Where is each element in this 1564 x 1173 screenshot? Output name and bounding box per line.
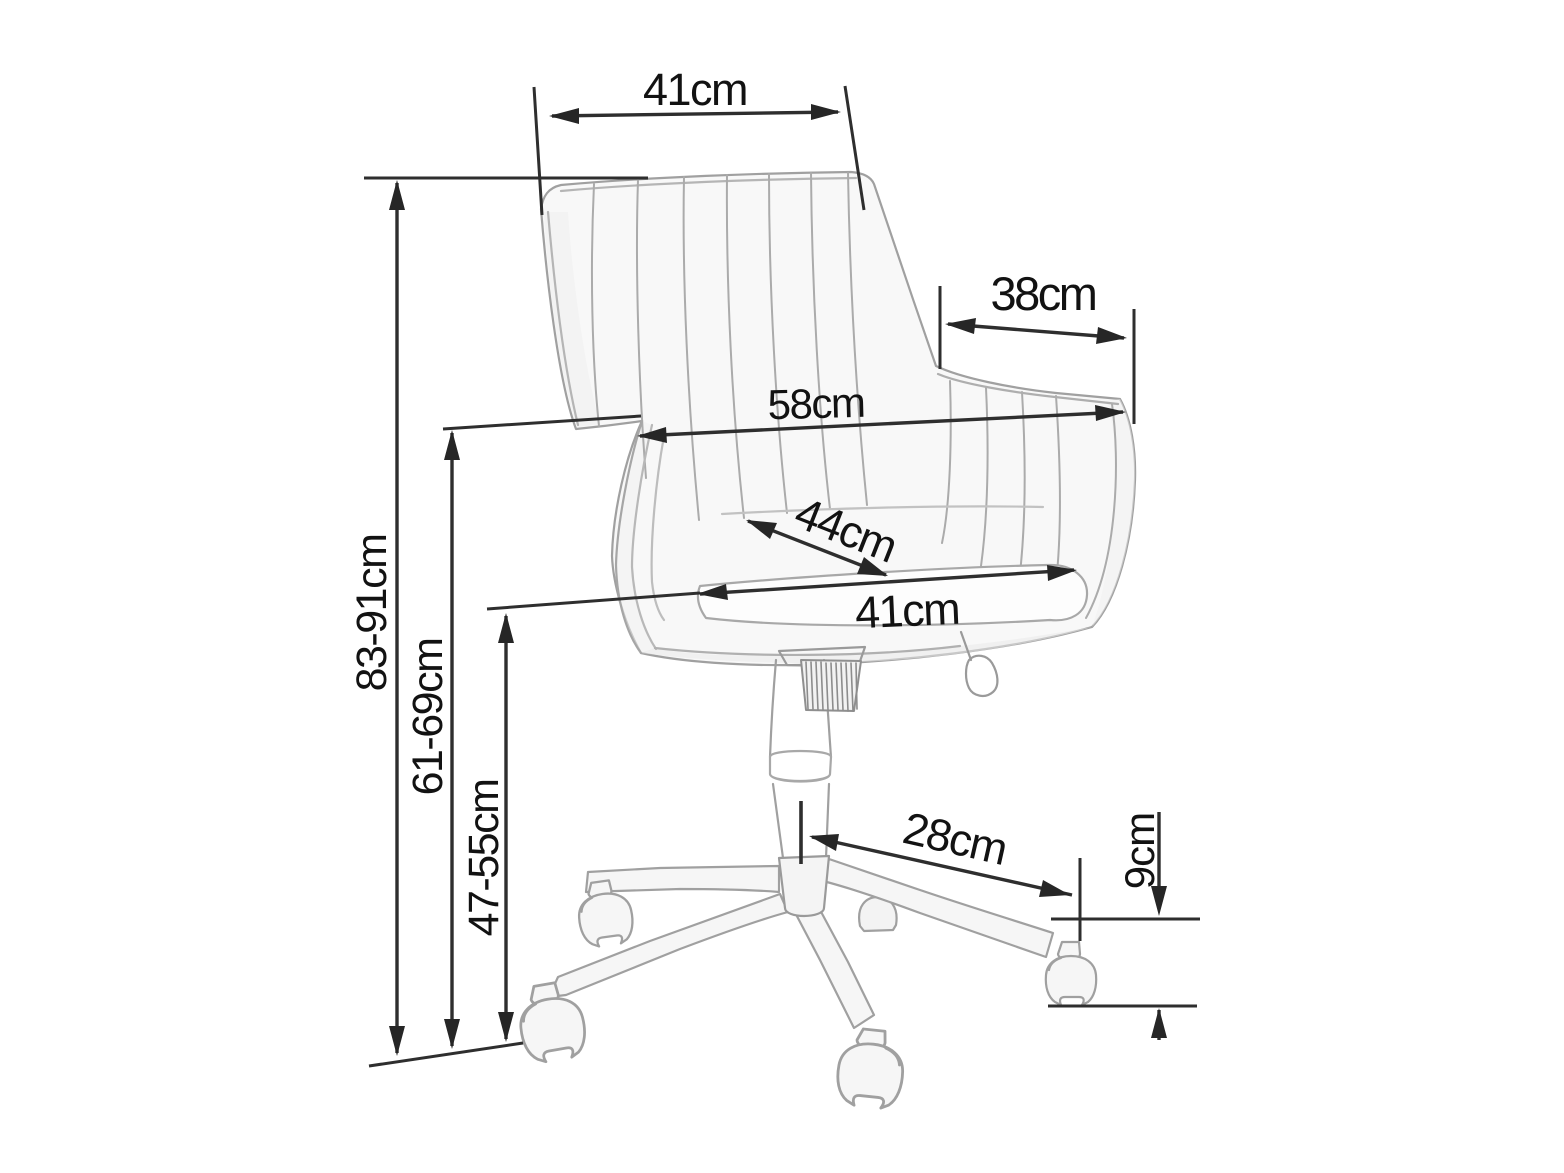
svg-text:41cm: 41cm xyxy=(643,64,747,115)
svg-text:58cm: 58cm xyxy=(767,379,865,429)
svg-text:47-55cm: 47-55cm xyxy=(460,780,508,937)
svg-text:61-69cm: 61-69cm xyxy=(404,639,452,796)
svg-text:9cm: 9cm xyxy=(1116,813,1163,889)
svg-text:41cm: 41cm xyxy=(854,583,960,638)
svg-text:38cm: 38cm xyxy=(991,267,1096,320)
svg-text:83-91cm: 83-91cm xyxy=(348,535,396,692)
